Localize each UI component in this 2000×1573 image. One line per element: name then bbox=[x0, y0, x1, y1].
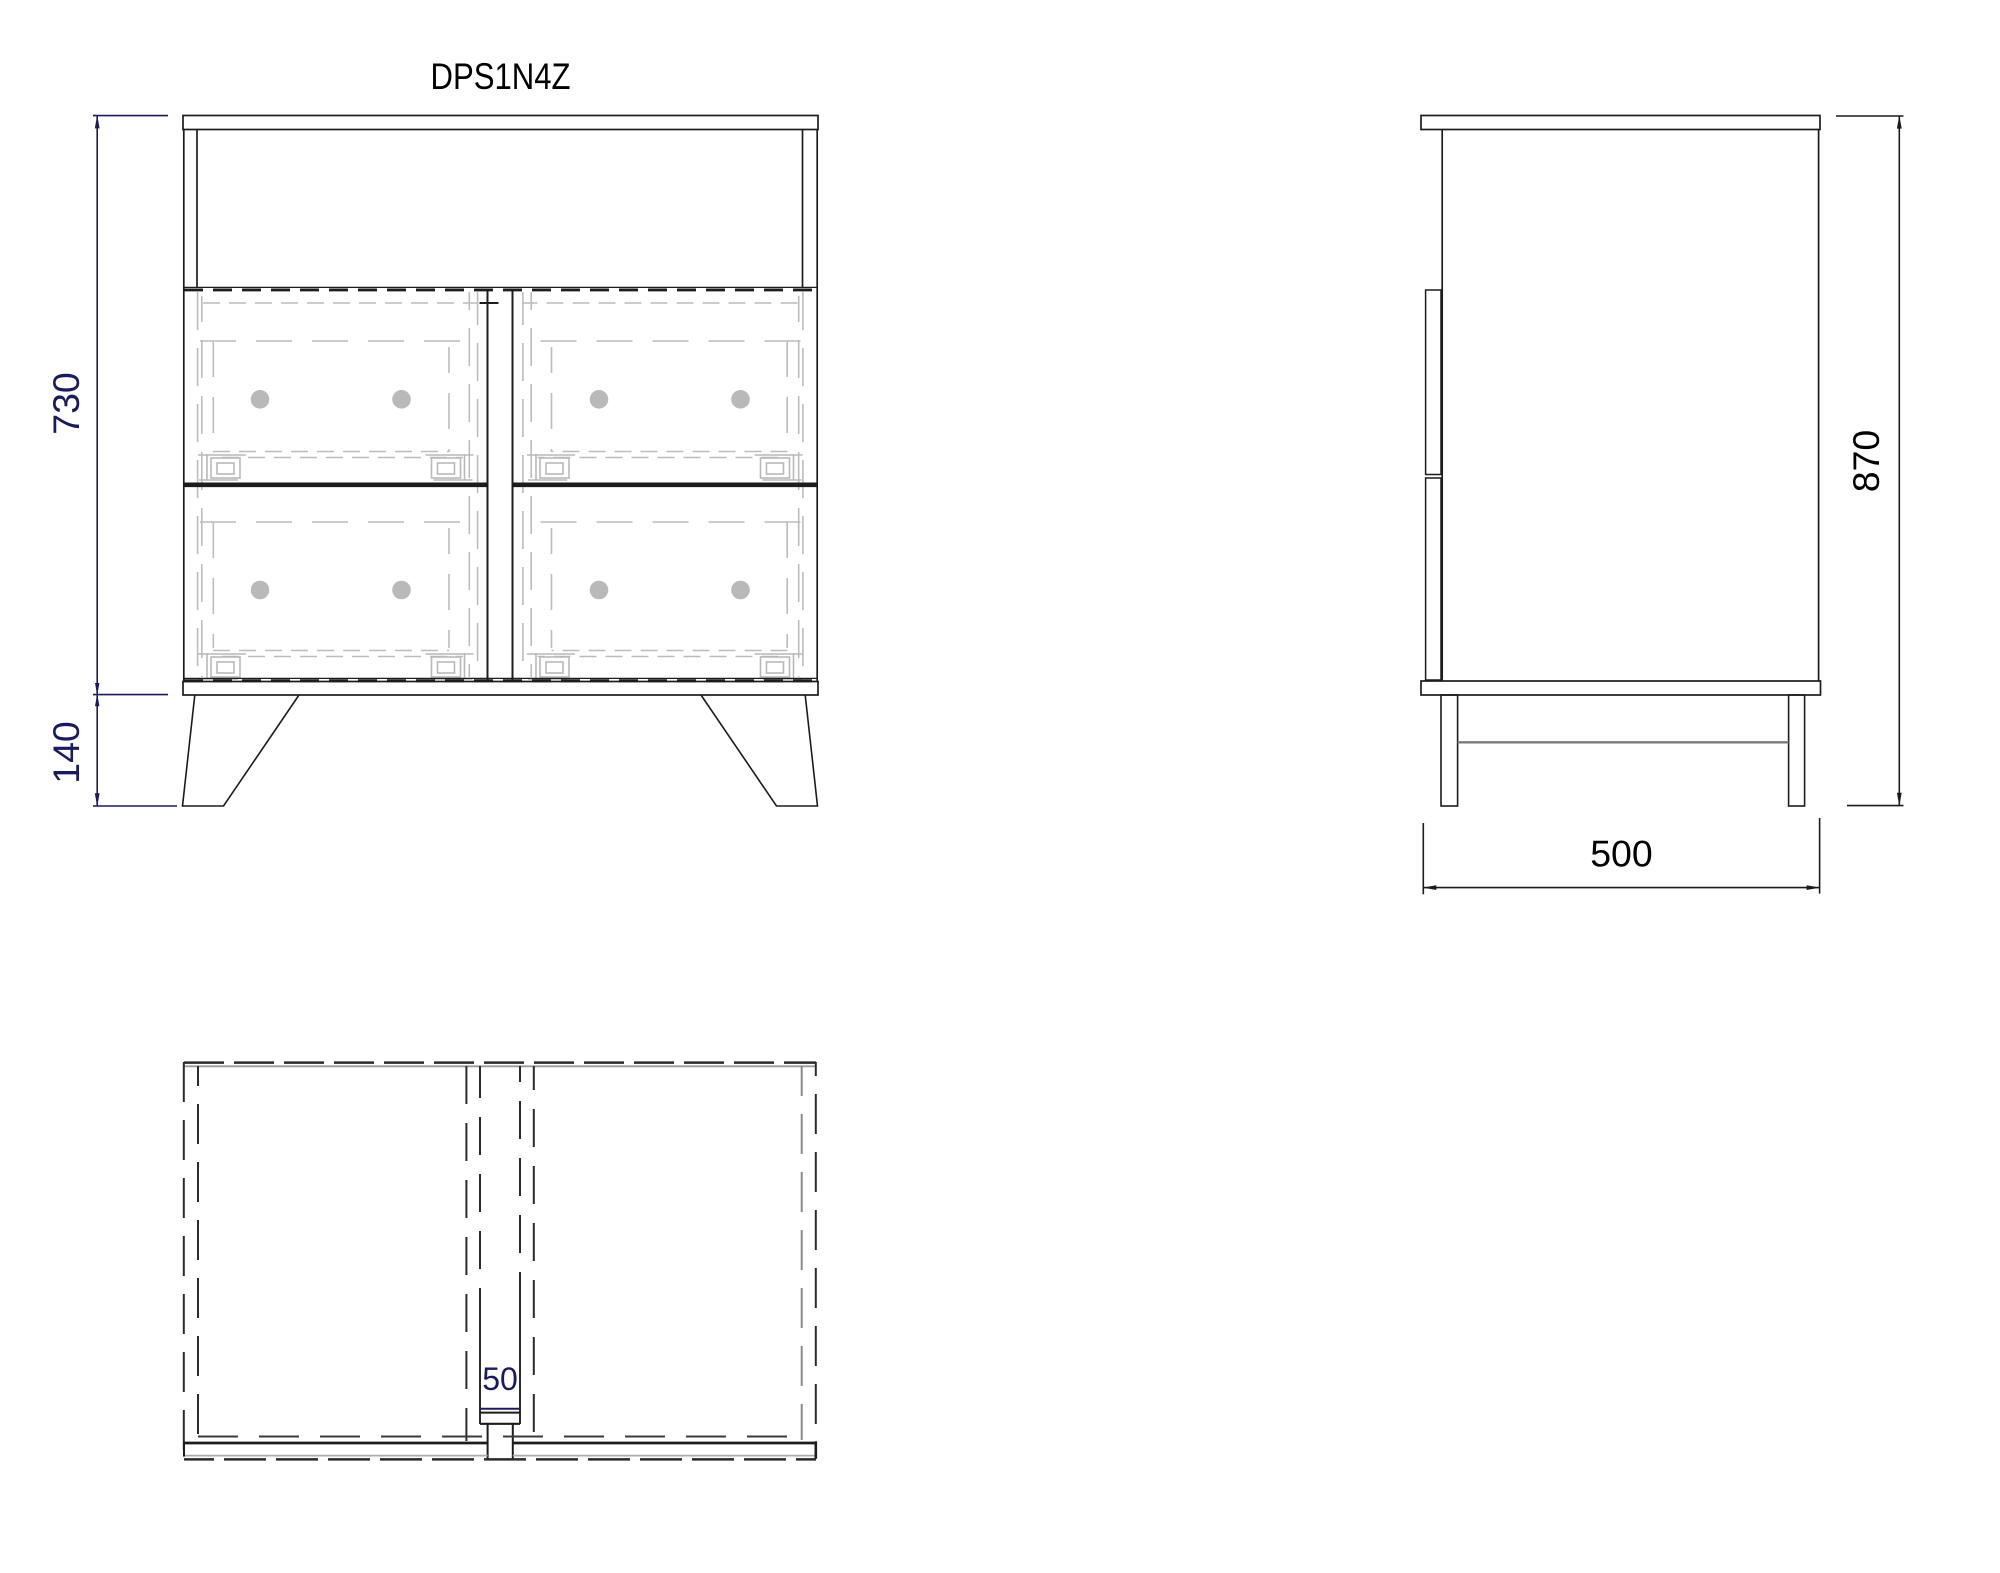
svg-text:730: 730 bbox=[45, 372, 87, 435]
svg-text:500: 500 bbox=[1590, 833, 1653, 875]
svg-text:DPS1N4Z: DPS1N4Z bbox=[431, 55, 571, 97]
svg-text:50: 50 bbox=[482, 1361, 518, 1397]
svg-text:870: 870 bbox=[1845, 430, 1887, 493]
svg-text:140: 140 bbox=[45, 721, 87, 784]
